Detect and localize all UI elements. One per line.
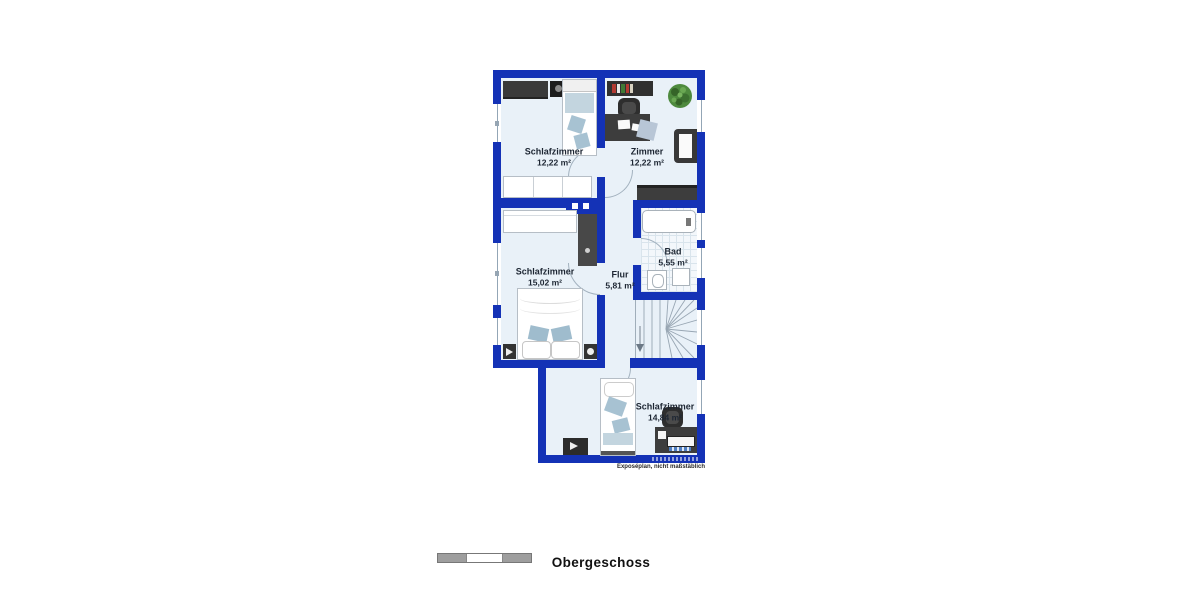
room-area: 12,22 m² xyxy=(525,157,584,167)
wall-room3-right-lower xyxy=(597,295,605,368)
wardrobe-room1 xyxy=(503,81,548,99)
monitor-icon xyxy=(667,436,695,447)
closet-divider xyxy=(562,177,563,197)
desk-item xyxy=(658,431,666,439)
bookshelf-zimmer xyxy=(607,81,653,96)
bed-pillow xyxy=(551,341,580,359)
room-name: Schlafzimmer xyxy=(516,267,575,278)
wardrobe-room3 xyxy=(578,214,597,266)
duvet-fold xyxy=(520,303,580,314)
closet-line xyxy=(504,215,576,216)
room-name: Flur xyxy=(605,270,634,281)
wall-bad-left-upper xyxy=(633,208,641,238)
window-room3-left-long xyxy=(493,243,501,305)
closet-room1 xyxy=(503,176,592,198)
room-area: 15,02 m² xyxy=(516,277,575,287)
double-bed-room3 xyxy=(517,288,583,360)
shower-basin xyxy=(672,268,690,286)
lamp-icon xyxy=(587,348,594,355)
faucet-icon xyxy=(686,218,691,226)
bed-room6 xyxy=(600,378,636,456)
bed-room1 xyxy=(562,79,597,156)
window-handle xyxy=(495,271,499,276)
room-area: 5,81 m² xyxy=(605,280,634,290)
toilet xyxy=(647,270,667,290)
wall-divider-stub xyxy=(597,177,605,208)
keyboard-icon xyxy=(669,447,691,451)
book xyxy=(617,84,620,93)
bed-headboard xyxy=(563,80,596,92)
floor-title: Obergeschoss xyxy=(521,555,681,570)
paper xyxy=(618,120,631,130)
armchair-cushion xyxy=(679,134,692,158)
chair-seat xyxy=(622,102,636,114)
wall-divider-top-rooms xyxy=(597,70,605,148)
room-area: 12,22 m² xyxy=(630,157,664,167)
room-name: Bad xyxy=(658,247,687,258)
watermark xyxy=(652,457,700,461)
window-room3-left-small xyxy=(493,318,501,345)
closet-divider xyxy=(533,177,534,197)
bathtub xyxy=(642,210,696,233)
scale-bar xyxy=(437,553,532,563)
room-label-schlafzimmer-1: Schlafzimmer 12,22 m² xyxy=(525,147,584,168)
bed-footboard xyxy=(601,451,635,455)
scale-segment xyxy=(438,554,466,562)
room-name: Schlafzimmer xyxy=(525,147,584,158)
tv-knob xyxy=(555,85,562,92)
window-stairs-right xyxy=(697,310,705,345)
desk-room6 xyxy=(655,427,697,453)
armchair-zimmer xyxy=(674,129,697,163)
book xyxy=(612,84,616,93)
window-room1-left xyxy=(493,104,501,142)
floor-flur-doorgap xyxy=(605,360,630,368)
window-handle xyxy=(495,121,499,126)
scale-segment xyxy=(466,554,503,562)
floorplan-canvas: Schlafzimmer 12,22 m² Zimmer 12,22 m² xyxy=(0,0,1200,600)
bed-pillow xyxy=(604,382,634,397)
window-bad-right-2 xyxy=(697,248,705,278)
book xyxy=(630,84,633,93)
bed-cushion xyxy=(612,417,631,433)
room-label-zimmer: Zimmer 12,22 m² xyxy=(630,147,664,168)
nightstand-right-room3 xyxy=(584,344,597,359)
wall-midblock-bottom xyxy=(493,360,605,368)
bed-cushion xyxy=(567,115,586,134)
room-name: Schlafzimmer xyxy=(636,402,695,413)
staircase xyxy=(635,300,697,358)
nightstand-left-room3 xyxy=(503,344,516,359)
bed-cushion xyxy=(604,396,627,417)
room-area: 5,55 m² xyxy=(658,257,687,267)
chimney-flue-1 xyxy=(572,203,578,209)
wardrobe-handle xyxy=(585,248,590,253)
chimney-flue-2 xyxy=(583,203,589,209)
room-area: 14,84 m² xyxy=(636,412,695,422)
closet-room3 xyxy=(503,210,577,233)
bed-blanket xyxy=(603,433,633,445)
wall-stairs-bottom xyxy=(630,358,697,368)
wall-bad-bottom xyxy=(633,292,705,300)
room-label-flur: Flur 5,81 m² xyxy=(605,270,634,291)
wall-room3-right-upper xyxy=(597,208,605,263)
lamp-icon xyxy=(506,348,513,356)
wall-bad-top xyxy=(633,200,705,208)
room-label-bad: Bad 5,55 m² xyxy=(658,247,687,268)
stairs-direction-arrow-icon xyxy=(636,344,644,352)
window-room6-right xyxy=(697,380,705,414)
book xyxy=(621,84,625,93)
plant-icon xyxy=(666,82,694,110)
toilet-bowl xyxy=(652,274,664,288)
room-label-schlafzimmer-3: Schlafzimmer 14,84 m² xyxy=(636,402,695,423)
window-bad-right-1 xyxy=(697,213,705,240)
room-label-schlafzimmer-2: Schlafzimmer 15,02 m² xyxy=(516,267,575,288)
bed-blanket xyxy=(565,93,594,113)
sideboard-zimmer xyxy=(637,185,697,200)
cabinet-icon xyxy=(570,442,578,450)
book xyxy=(626,84,629,93)
window-zimmer-right xyxy=(697,100,705,132)
wall-lowerblock-left xyxy=(538,360,546,463)
room-name: Zimmer xyxy=(630,147,664,158)
bed-pillow xyxy=(522,341,551,359)
disclaimer-text: Exposéplan, nicht maßstäblich xyxy=(617,464,705,470)
cabinet-room6 xyxy=(563,438,588,455)
